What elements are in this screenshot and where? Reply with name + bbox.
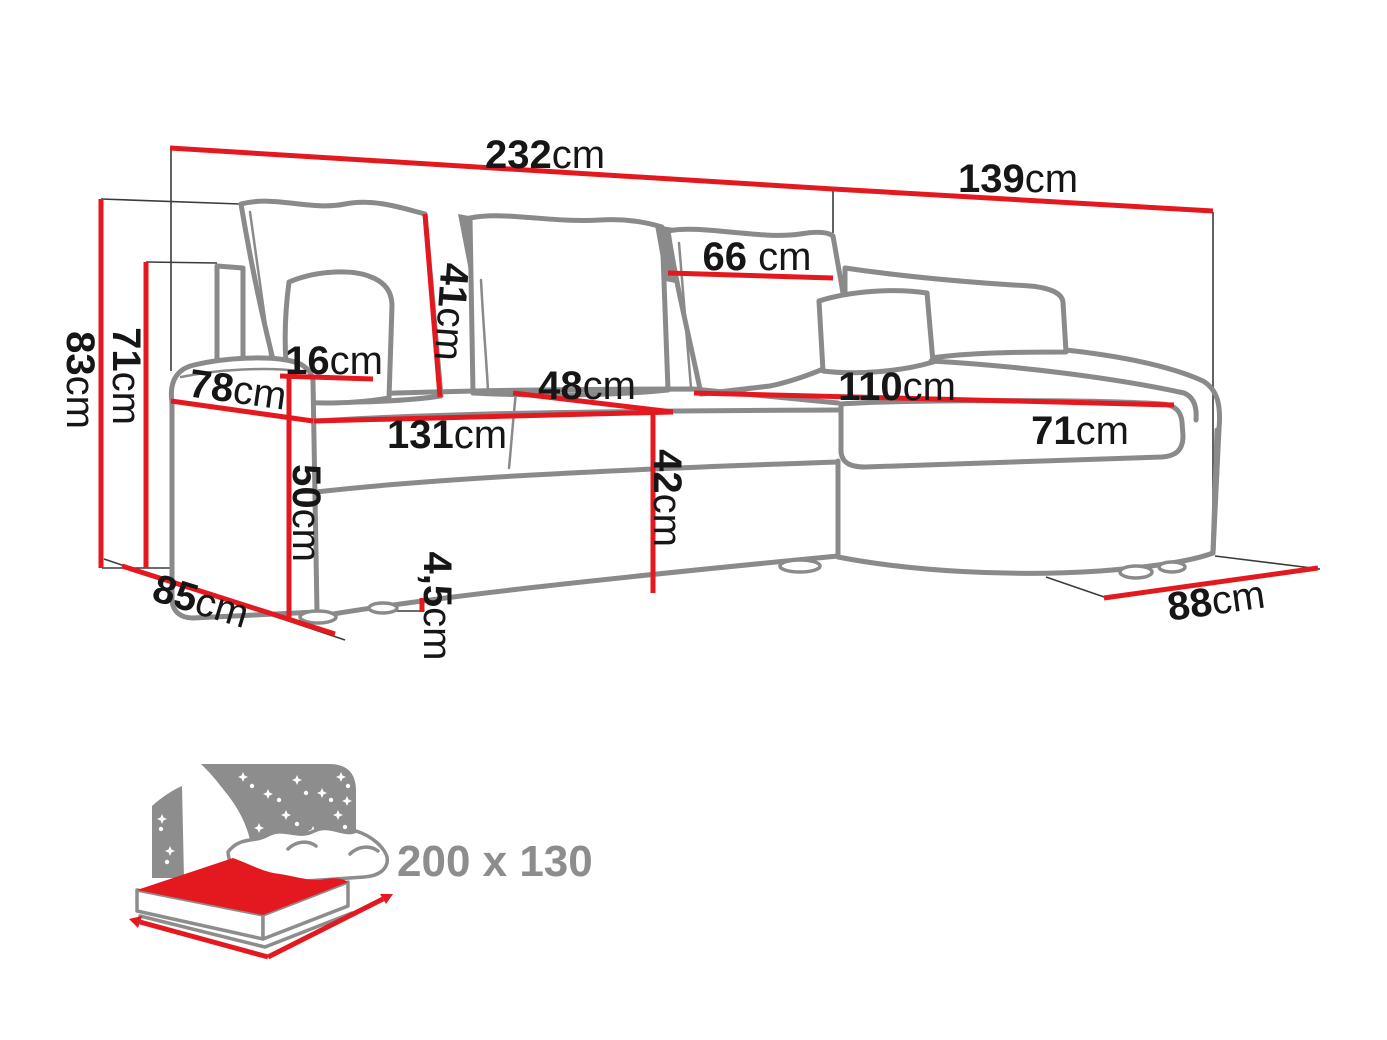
dim-label-chaise-seat-width: 71cm <box>1031 409 1129 453</box>
dim-unit: cm <box>1025 157 1078 201</box>
dim-value: 42 <box>645 449 689 494</box>
dim-unit: cm <box>645 494 689 547</box>
dim-unit: cm <box>426 306 474 362</box>
dim-label-armrest-top-width: 16cm <box>285 339 383 383</box>
dim-label-seat-width: 131cm <box>387 413 507 457</box>
dim-value: 71 <box>1031 409 1076 453</box>
dim-value: 41 <box>429 262 476 309</box>
chaise-seat-cushion <box>841 401 1183 467</box>
dim-unit: cm <box>552 133 605 177</box>
dim-value: 4,5 <box>415 552 459 608</box>
dim-unit: cm <box>330 339 383 383</box>
dim-label-chaise-seat-length: 110cm <box>838 365 956 409</box>
dim-value: 110 <box>838 365 903 409</box>
dim-unit: cm <box>415 607 459 660</box>
dim-label-chaise-depth: 139cm <box>958 157 1078 201</box>
dim-value: 71 <box>104 327 148 372</box>
dim-unit: cm <box>1209 573 1268 624</box>
dim-value: 50 <box>284 464 328 509</box>
dim-label-seat-height: 42cm <box>645 449 689 547</box>
dim-unit: cm <box>454 413 507 457</box>
dim-unit: cm <box>104 372 148 425</box>
dim-label-total-width: 232cm <box>485 133 605 177</box>
dim-value: 139 <box>958 157 1025 201</box>
backrest-frame <box>217 266 243 370</box>
dim-label-leg-height: 4,5cm <box>415 552 459 661</box>
dim-value: 48 <box>538 364 583 408</box>
seat-center-seam <box>509 392 516 468</box>
dim-label-seat-depth: 48cm <box>538 364 636 408</box>
dim-unit: cm <box>1076 409 1129 453</box>
dim-unit: cm <box>747 235 811 279</box>
dim-label-back-cushion-width: 66 cm <box>703 235 812 279</box>
sleeping-function-icon: 200 x 130 <box>129 764 593 957</box>
dim-value: 88 <box>1165 580 1215 630</box>
dim-value: 16 <box>285 339 330 383</box>
dim-unit: cm <box>583 364 636 408</box>
dim-label-total-height: 83cm <box>58 331 102 429</box>
seat-cushion-bottom-seam <box>316 462 838 492</box>
dim-unit: cm <box>230 368 289 419</box>
night-sky-panel-left <box>152 786 184 878</box>
dim-unit: cm <box>903 365 956 409</box>
dim-label-armrest-height: 50cm <box>284 464 328 562</box>
dim-label-backrest-height: 71cm <box>104 327 148 425</box>
dim-label-back-cushion-height: 41cm <box>426 262 477 363</box>
dim-value: 232 <box>485 133 552 177</box>
dim-value: 78 <box>186 362 236 412</box>
dim-unit: cm <box>284 509 328 562</box>
sofa-dimension-diagram: 232cm 139cm 66 cm 41cm 16cm 78cm 83cm 71… <box>0 0 1387 1040</box>
dim-value: 83 <box>58 331 102 376</box>
sofa-dimension-diagram-page: 232cm 139cm 66 cm 41cm 16cm 78cm 83cm 71… <box>0 0 1387 1040</box>
sleeping-area-size-label: 200 x 130 <box>397 837 593 886</box>
dim-label-chaise-front-width: 88cm <box>1165 573 1268 630</box>
dim-unit: cm <box>58 376 102 429</box>
dim-value: 66 <box>703 235 748 279</box>
small-pillow <box>819 291 933 373</box>
dim-value: 131 <box>387 413 454 457</box>
